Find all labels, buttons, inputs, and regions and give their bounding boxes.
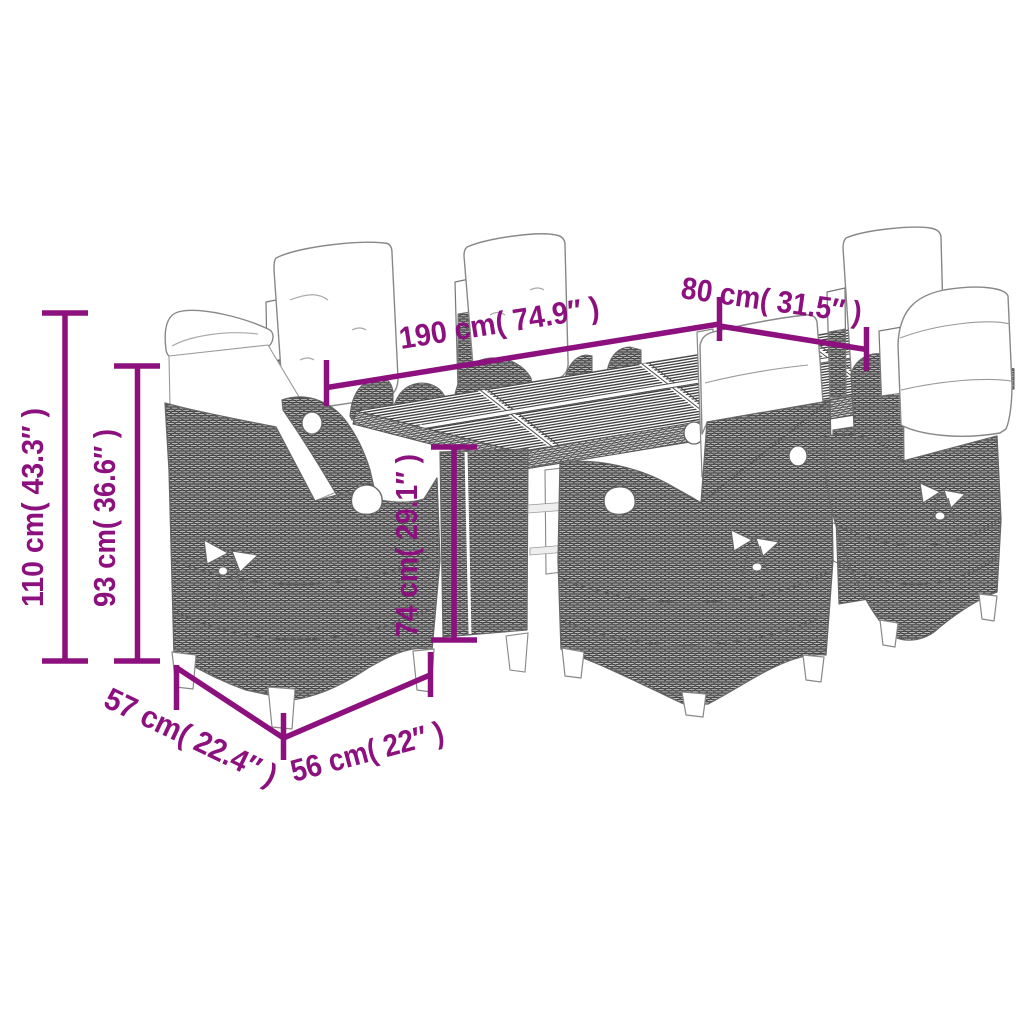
svg-text:93 cm( 36.6″ ): 93 cm( 36.6″ ) bbox=[87, 429, 122, 607]
svg-text:74 cm( 29.1″ ): 74 cm( 29.1″ ) bbox=[389, 454, 424, 637]
svg-text:110 cm( 43.3″ ): 110 cm( 43.3″ ) bbox=[15, 408, 50, 607]
